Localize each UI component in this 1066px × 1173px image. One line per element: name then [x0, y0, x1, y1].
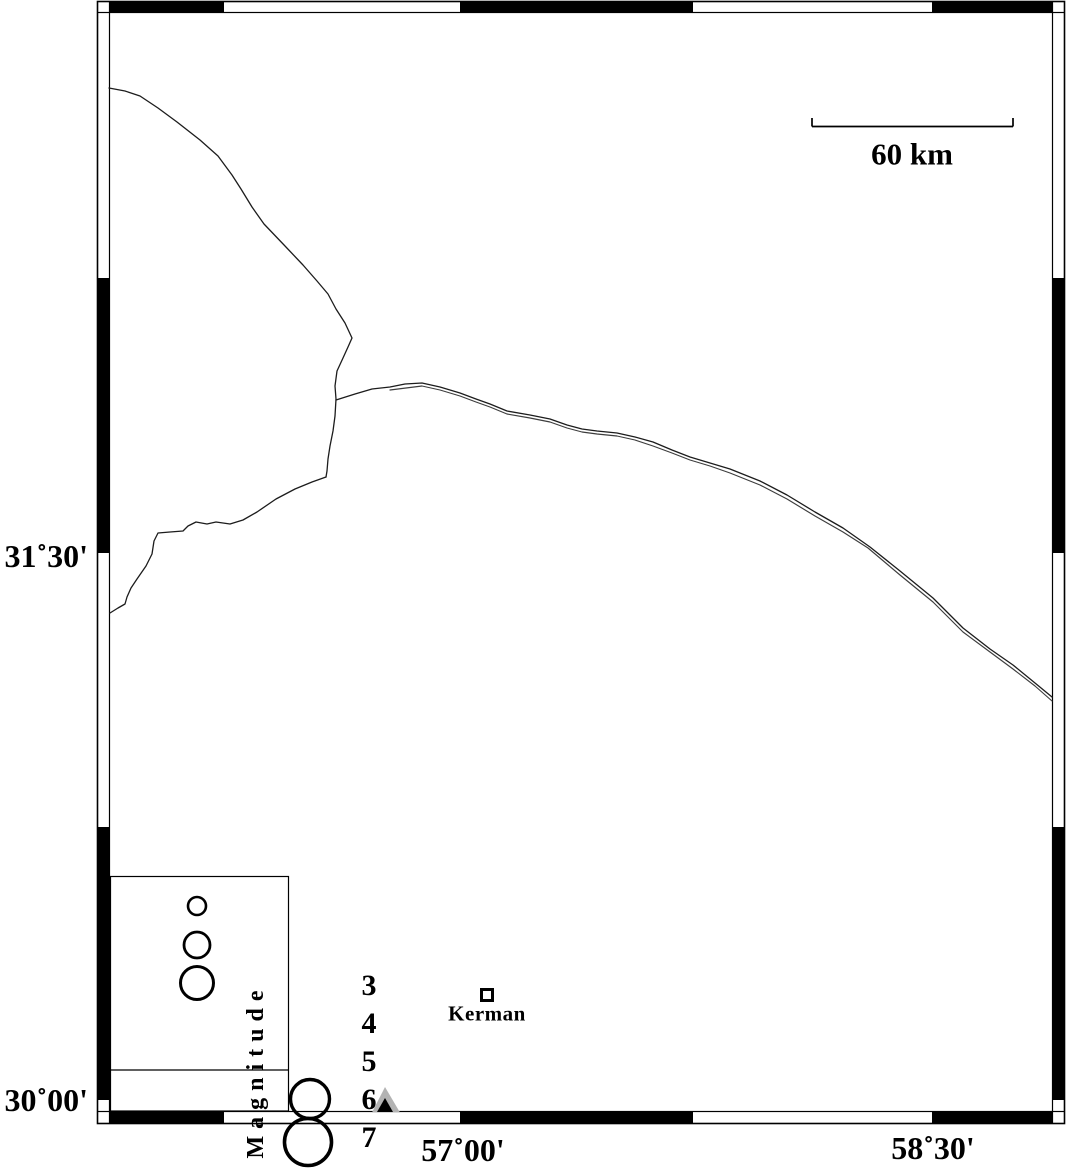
- latitude-label-3130: 31˚30': [4, 540, 88, 572]
- scale-bar: [812, 118, 1013, 127]
- fault-line-southwest: [110, 477, 326, 613]
- legend-label-3: 3: [362, 971, 377, 1001]
- longitude-label-5830: 58˚30': [891, 1132, 975, 1164]
- legend-label-4: 4: [362, 1009, 377, 1039]
- city-label: Kerman: [448, 1004, 526, 1025]
- legend-label-7: 7: [362, 1123, 377, 1153]
- scale-bar-label: 60 km: [871, 139, 953, 170]
- fault-lines: [109, 88, 1052, 701]
- fault-line-east-twin: [390, 386, 1052, 701]
- magnitude-6-circle: [291, 1080, 330, 1119]
- magnitude-7-circle: [285, 1119, 332, 1166]
- longitude-label-5700: 57˚00': [421, 1134, 505, 1166]
- fault-line-east-main: [336, 383, 1052, 697]
- city-square-marker: [482, 990, 493, 1001]
- latitude-label-3000: 30˚00': [4, 1084, 88, 1116]
- fault-line-northwest: [109, 88, 352, 477]
- map-figure: 31˚30' 30˚00' 57˚00' 58˚30' 60 km Kerman…: [0, 0, 1066, 1173]
- legend-label-6: 6: [362, 1085, 377, 1115]
- map-graphics: [0, 0, 1066, 1173]
- legend-title: Magnitude: [244, 983, 268, 1158]
- legend-label-5: 5: [362, 1047, 377, 1077]
